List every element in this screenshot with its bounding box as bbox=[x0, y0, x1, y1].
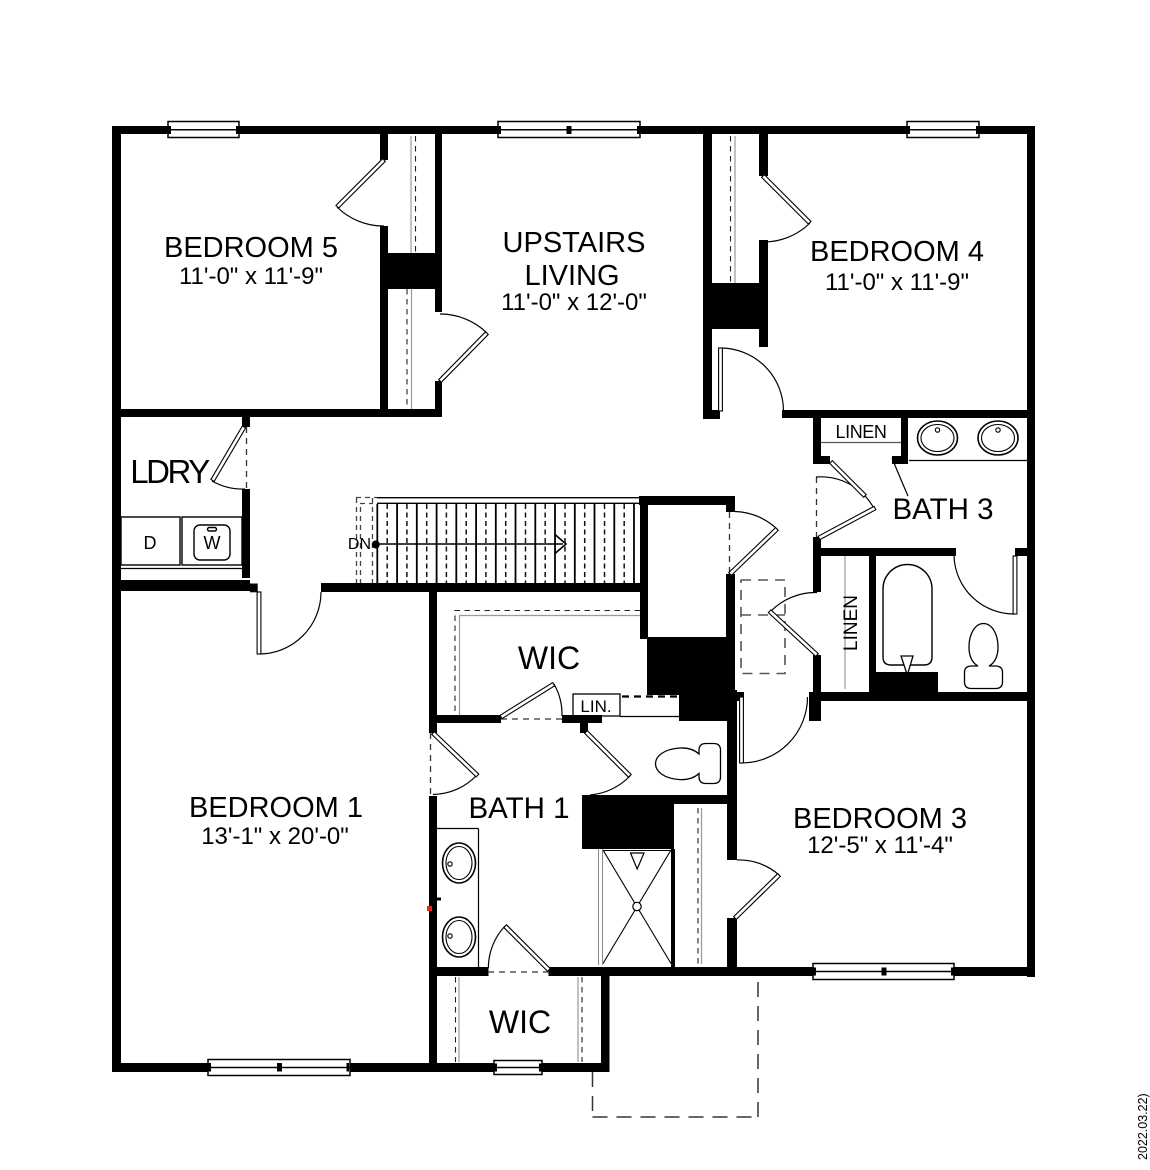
svg-text:LINEN: LINEN bbox=[835, 422, 886, 442]
svg-text:BEDROOM 4: BEDROOM 4 bbox=[810, 236, 984, 268]
svg-text:LIVING: LIVING bbox=[524, 260, 619, 292]
svg-text:12'-5" x 11'-4": 12'-5" x 11'-4" bbox=[807, 832, 953, 859]
svg-text:DN: DN bbox=[348, 536, 371, 553]
svg-text:13'-1" x 20'-0": 13'-1" x 20'-0" bbox=[201, 823, 349, 850]
svg-text:WIC: WIC bbox=[518, 640, 580, 676]
svg-text:LINEN: LINEN bbox=[841, 595, 862, 651]
svg-text:W: W bbox=[204, 533, 221, 553]
svg-text:LDRY: LDRY bbox=[130, 453, 210, 490]
svg-text:BEDROOM 3: BEDROOM 3 bbox=[793, 803, 967, 835]
svg-text:BATH 3: BATH 3 bbox=[892, 493, 993, 526]
svg-text:11'-0" x 11'-9": 11'-0" x 11'-9" bbox=[825, 269, 969, 296]
svg-text:11'-0" x 12'-0": 11'-0" x 12'-0" bbox=[501, 289, 647, 316]
svg-text:11'-0" x 11'-9": 11'-0" x 11'-9" bbox=[179, 263, 323, 290]
svg-text:D: D bbox=[144, 533, 157, 553]
svg-text:WIC: WIC bbox=[489, 1004, 551, 1040]
svg-text:UPSTAIRS: UPSTAIRS bbox=[503, 227, 646, 259]
svg-text:BEDROOM 1: BEDROOM 1 bbox=[189, 792, 363, 824]
svg-text:LIN.: LIN. bbox=[580, 697, 611, 716]
svg-text:BEDROOM 5: BEDROOM 5 bbox=[164, 232, 338, 264]
svg-text:BATH 1: BATH 1 bbox=[468, 792, 569, 825]
svg-text:2022.03.22): 2022.03.22) bbox=[1136, 1093, 1150, 1160]
